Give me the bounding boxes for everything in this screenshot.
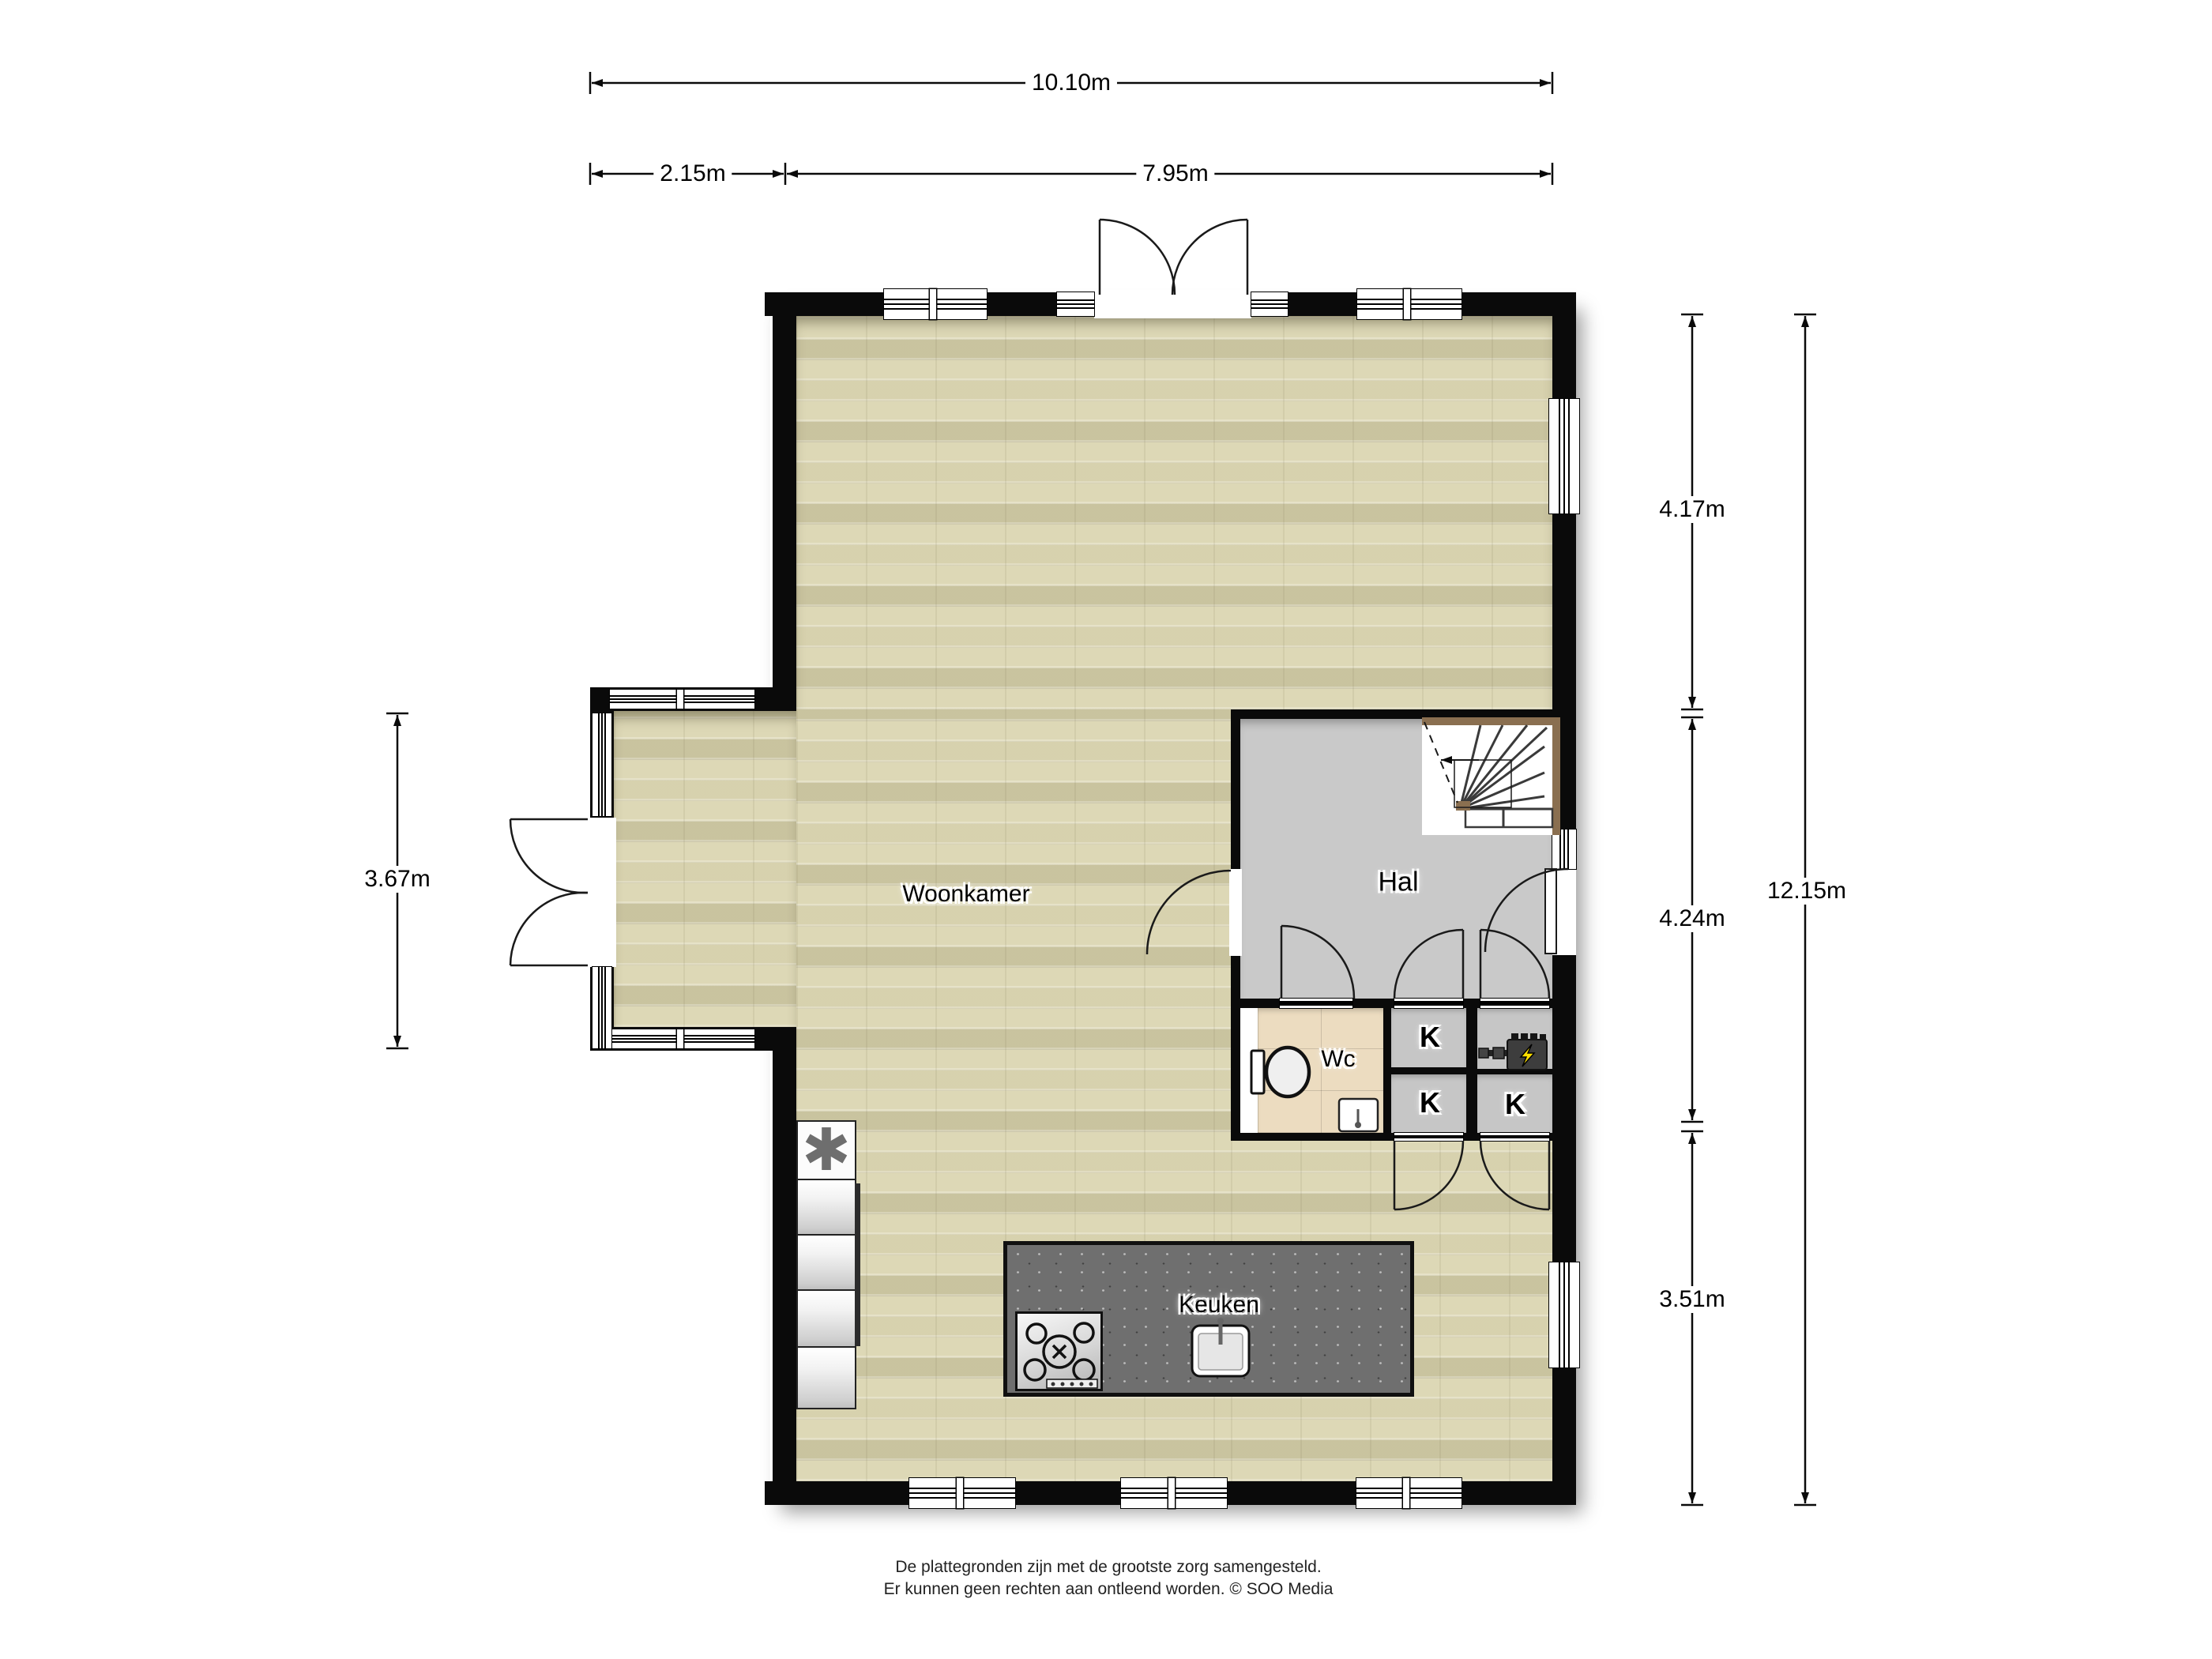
- boiler-door-threshold: [1480, 999, 1549, 1008]
- window-bottom-1: [909, 1478, 1015, 1508]
- bay-window-top: [610, 690, 754, 709]
- dim-right-middle: 4.24m: [1653, 905, 1731, 932]
- wall-right-3: [1552, 955, 1576, 1262]
- k1-door-threshold: [1394, 999, 1463, 1008]
- window-right-upper: [1549, 399, 1579, 513]
- bay-door-opening: [588, 818, 616, 967]
- block-wall-left: [1231, 999, 1240, 1141]
- cabinet-1: [796, 1179, 856, 1236]
- freezer-icon: ✱: [802, 1121, 851, 1179]
- dim-top-left-segment: 2.15m: [653, 160, 732, 187]
- window-mullion: [930, 289, 936, 319]
- k3-door-threshold: [1480, 1133, 1549, 1141]
- wall-bottom-3: [1227, 1481, 1356, 1505]
- closet-k2-label: K: [1420, 1086, 1440, 1119]
- wall-left-lower: [773, 1027, 796, 1505]
- wall-top-2: [987, 292, 1057, 316]
- wall-right-1: [1552, 292, 1576, 399]
- wall-k1-k2: [1391, 1067, 1466, 1074]
- closet-k3-label: K: [1505, 1088, 1525, 1121]
- staircase: [1422, 717, 1560, 835]
- dim-right-lower: 3.51m: [1653, 1286, 1731, 1313]
- front-door-opening: [1094, 290, 1251, 318]
- living-room-label: Woonkamer: [902, 881, 1029, 908]
- window-bottom-2: [1121, 1478, 1227, 1508]
- wc-door-threshold: [1280, 999, 1352, 1008]
- boiler-closet-floor: [1477, 1008, 1552, 1069]
- dim-top-right-segment: 7.95m: [1136, 160, 1214, 187]
- window-mullion: [1168, 1478, 1175, 1508]
- block-wall-bottom-1: [1231, 1133, 1394, 1141]
- cabinet-3: [796, 1289, 856, 1348]
- bay-window-left-lower: [592, 967, 611, 1048]
- disclaimer-line-1: De plattegronden zijn met de grootste zo…: [895, 1558, 1321, 1577]
- window-mullion: [677, 1029, 683, 1048]
- block-wall-top-4: [1549, 999, 1552, 1008]
- wall-bottom-4: [1461, 1481, 1576, 1505]
- block-wall-bottom-3: [1549, 1133, 1552, 1141]
- window-mullion: [677, 690, 683, 709]
- dim-right-total: 12.15m: [1761, 878, 1853, 905]
- k2-door-threshold: [1394, 1133, 1463, 1141]
- living-room-floor: [796, 316, 1552, 709]
- freezer-appliance: ✱: [796, 1120, 856, 1180]
- floorplan-page: ✱: [0, 0, 2212, 1659]
- wall-wc-k: [1383, 1008, 1391, 1133]
- hall-door-sidelight: [1552, 829, 1576, 869]
- bay-window-left-upper: [592, 713, 611, 816]
- dim-top-total: 10.10m: [1025, 70, 1117, 96]
- window-top-a: [884, 289, 987, 319]
- wall-left-upper: [773, 292, 796, 711]
- hall-label: Hal: [1378, 867, 1418, 898]
- wall-boiler-k3: [1477, 1069, 1552, 1074]
- wc-label: Wc: [1321, 1046, 1355, 1073]
- window-mullion: [1403, 1478, 1409, 1508]
- window-mullion: [1404, 289, 1410, 319]
- block-wall-top-3: [1463, 999, 1480, 1008]
- kitchen-label: Keuken: [1179, 1292, 1259, 1319]
- window-top-b: [1057, 292, 1094, 316]
- wall-bottom-2: [1015, 1481, 1121, 1505]
- cooktop: [1015, 1311, 1103, 1391]
- bay-extension-floor: [614, 711, 796, 1027]
- window-top-d: [1357, 289, 1461, 319]
- window-top-c: [1251, 292, 1288, 316]
- block-wall-top-2: [1352, 999, 1394, 1008]
- closet-k1-label: K: [1420, 1021, 1440, 1054]
- wall-k-k: [1466, 1008, 1477, 1133]
- cabinet-4: [796, 1346, 856, 1409]
- block-wall-bottom-2: [1463, 1133, 1480, 1141]
- cabinet-counter-edge: [855, 1183, 860, 1346]
- window-right-lower: [1549, 1262, 1579, 1367]
- dim-right-upper: 4.17m: [1653, 496, 1731, 523]
- window-mullion: [957, 1478, 963, 1508]
- dim-left-side: 3.67m: [358, 866, 436, 893]
- window-bottom-3: [1356, 1478, 1461, 1508]
- cabinet-2: [796, 1234, 856, 1291]
- disclaimer-line-2: Er kunnen geen rechten aan ontleend word…: [884, 1580, 1334, 1599]
- bay-window-bottom: [610, 1029, 754, 1048]
- wc-door-recess: [1240, 1008, 1258, 1133]
- hall-living-door-opening: [1229, 869, 1242, 956]
- wall-top-3: [1288, 292, 1357, 316]
